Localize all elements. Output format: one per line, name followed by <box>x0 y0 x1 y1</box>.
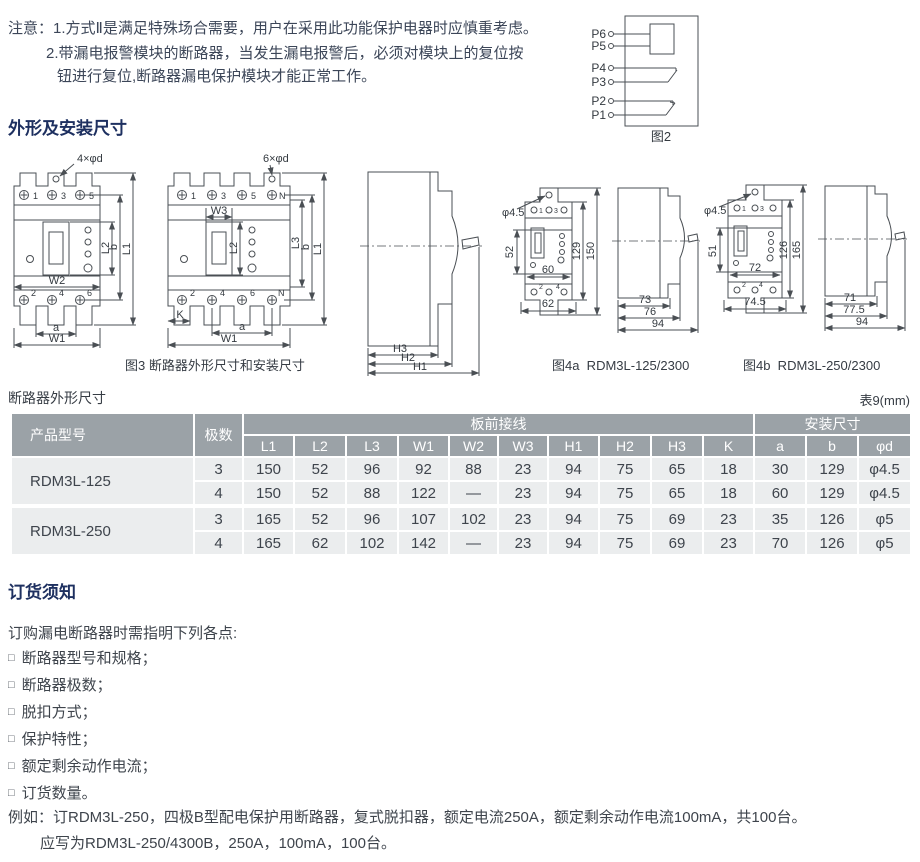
value-cell: 69 <box>651 531 703 555</box>
fig3-3p-dim-b: b <box>108 244 120 250</box>
value-cell: — <box>449 531 498 555</box>
ordering-intro: 订购漏电断路器时需指明下列各点: <box>8 622 237 643</box>
header-col-h2: H2 <box>599 435 651 457</box>
value-cell: 52 <box>294 481 346 506</box>
list-item-label: 脱扣方式； <box>22 701 97 722</box>
poles-cell: 4 <box>194 481 243 506</box>
fig4b-side-view: 71 77.5 94 <box>818 186 907 331</box>
fig4a-dim-60: 60 <box>542 264 554 276</box>
value-cell: 88 <box>346 481 398 506</box>
fig4b-dim-775: 77.5 <box>843 304 864 316</box>
value-cell: 102 <box>449 506 498 531</box>
value-cell: φ4.5 <box>858 457 911 481</box>
header-group-front-wiring: 板前接线 <box>243 413 754 435</box>
section-title-ordering: 订货须知 <box>8 578 76 603</box>
value-cell: 23 <box>703 506 754 531</box>
fig3-3p-dim-w2: W2 <box>49 275 66 287</box>
value-cell: 52 <box>294 506 346 531</box>
square-bullet-icon: □ <box>8 733 15 745</box>
fig3-4p-terminal-2: 2 <box>190 288 195 298</box>
header-poles: 极数 <box>194 413 243 457</box>
header-col-l2: L2 <box>294 435 346 457</box>
value-cell: 129 <box>806 457 858 481</box>
outline-drawings: 4×φd 1 3 5 2 4 6 W2 a W1 L2 b L1 <box>0 146 920 378</box>
fig3-4p-terminal-4: 4 <box>220 288 225 298</box>
value-cell: 18 <box>703 457 754 481</box>
fig3-4p-terminal-1: 1 <box>191 191 196 201</box>
list-item: □ 额定剩余动作电流； <box>8 752 157 779</box>
fig4b-dim-94: 94 <box>856 316 868 328</box>
fig4a-front-view: 1 3 2 4 φ4.5 52 60 62 129 150 <box>502 188 601 315</box>
fig3-4p-terminal-5: 5 <box>251 191 256 201</box>
square-bullet-icon: □ <box>8 760 15 772</box>
header-col-h3: H3 <box>651 435 703 457</box>
fig4a-dim-129: 129 <box>571 242 583 260</box>
list-item-label: 保护特性； <box>22 728 97 749</box>
terminal-p2-label: P2 <box>591 94 606 108</box>
square-bullet-icon: □ <box>8 787 15 799</box>
value-cell: 23 <box>498 457 548 481</box>
fig4a-side-view: 73 76 94 <box>612 188 700 333</box>
fig3-4p-terminal-3: 3 <box>221 191 226 201</box>
list-item-label: 额定剩余动作电流； <box>22 755 157 776</box>
fig3-3p-terminal-4: 4 <box>59 288 64 298</box>
poles-cell: 3 <box>194 457 243 481</box>
list-item-label: 订货数量。 <box>22 782 97 803</box>
fig4a-dim-62: 62 <box>542 298 554 310</box>
value-cell: 94 <box>548 457 599 481</box>
fig4b-terminal-2: 2 <box>742 282 746 289</box>
value-cell: 150 <box>243 457 294 481</box>
value-cell: 65 <box>651 481 703 506</box>
terminal-p4-label: P4 <box>591 61 606 75</box>
header-col-b: b <box>806 435 858 457</box>
list-item-label: 断路器型号和规格； <box>22 647 157 668</box>
header-col-h1: H1 <box>548 435 599 457</box>
value-cell: 18 <box>703 481 754 506</box>
fig3-3p-dim-w1: W1 <box>49 333 66 345</box>
value-cell: 60 <box>754 481 806 506</box>
list-item: □ 保护特性； <box>8 725 157 752</box>
section-title-dimensions: 外形及安装尺寸 <box>8 114 127 139</box>
fig2-wiring <box>609 32 678 118</box>
model-cell-rdm3l-250: RDM3L-250 <box>11 506 194 555</box>
fig4a-dim-73: 73 <box>639 294 651 306</box>
value-cell: 35 <box>754 506 806 531</box>
fig3-4p-dim-a: a <box>239 321 246 333</box>
value-cell: 94 <box>548 531 599 555</box>
fig4b-terminal-3: 3 <box>760 206 764 213</box>
fig4a-terminal-2: 2 <box>539 284 543 291</box>
value-cell: 69 <box>651 506 703 531</box>
fig4a-terminal-4: 4 <box>556 284 560 291</box>
value-cell: 70 <box>754 531 806 555</box>
fig2-caption: 图2 <box>651 129 671 144</box>
value-cell: 92 <box>398 457 449 481</box>
fig4b-terminal-4: 4 <box>759 282 763 289</box>
value-cell: φ4.5 <box>858 481 911 506</box>
value-cell: φ5 <box>858 531 911 555</box>
square-bullet-icon: □ <box>8 679 15 691</box>
terminal-p5-label: P5 <box>591 39 606 53</box>
fig3-4p-dim-l2: L2 <box>228 242 240 254</box>
header-col-l3: L3 <box>346 435 398 457</box>
fig3-side-view: H3 H2 H1 <box>360 172 482 376</box>
fig3-4p-dim-w1: W1 <box>221 333 238 345</box>
fig3-caption: 图3 断路器外形尺寸和安装尺寸 <box>125 355 305 374</box>
header-col-phid: φd <box>858 435 911 457</box>
table-unit-note: 表9(mm) <box>859 390 910 409</box>
value-cell: 75 <box>599 506 651 531</box>
poles-cell: 3 <box>194 506 243 531</box>
value-cell: 96 <box>346 506 398 531</box>
value-cell: 165 <box>243 506 294 531</box>
header-col-w1: W1 <box>398 435 449 457</box>
value-cell: 75 <box>599 531 651 555</box>
header-col-l1: L1 <box>243 435 294 457</box>
table-row: RDM3L-125 3 150 52 96 92 88 23 94 75 65 … <box>11 457 911 481</box>
value-cell: 142 <box>398 531 449 555</box>
square-bullet-icon: □ <box>8 706 15 718</box>
fig3-front-4pole: 6×φd 1 3 5 N 2 4 6 N W3 K a W1 L2 L3 <box>168 153 327 348</box>
value-cell: 122 <box>398 481 449 506</box>
value-cell: 75 <box>599 481 651 506</box>
value-cell: 126 <box>806 506 858 531</box>
fig2-terminal-schematic: P6 P5 P4 P3 P2 P1 图2 <box>578 10 788 150</box>
fig3-4p-terminal-6: 6 <box>250 288 255 298</box>
header-group-mounting: 安装尺寸 <box>754 413 911 435</box>
header-col-k: K <box>703 435 754 457</box>
fig4a-dim-52: 52 <box>504 246 516 258</box>
fig3-3p-terminal-2: 2 <box>31 288 36 298</box>
value-cell: 23 <box>498 481 548 506</box>
fig4b-dim-71: 71 <box>844 292 856 304</box>
list-item-label: 断路器极数； <box>22 674 112 695</box>
value-cell: 96 <box>346 457 398 481</box>
fig2-terminal-labels: P6 P5 P4 P3 P2 P1 <box>591 27 606 122</box>
fig3-4p-dim-b: b <box>300 244 312 250</box>
fig3-3p-drill-note: 4×φd <box>77 153 103 165</box>
fig4b-dim-72: 72 <box>749 262 761 274</box>
fig3-3p-terminal-6: 6 <box>87 288 92 298</box>
dimensions-table-wrap: 产品型号 极数 板前接线 安装尺寸 L1 L2 L3 W1 W2 W3 H1 H… <box>10 412 910 556</box>
value-cell: 23 <box>703 531 754 555</box>
poles-cell: 4 <box>194 531 243 555</box>
fig3-3p-terminal-1: 1 <box>33 191 38 201</box>
fig3-3p-dim-l1: L1 <box>121 243 133 255</box>
datasheet-page: 注意：1.方式Ⅱ是满足特殊场合需要，用户在采用此功能保护电器时应慎重考虑。 2.… <box>0 0 920 862</box>
notice-line-3: 钮进行复位,断路器漏电保护模块才能正常工作。 <box>57 67 376 86</box>
fig2-enclosure <box>625 16 698 126</box>
terminal-p1-label: P1 <box>591 108 606 122</box>
fig3-front-3pole: 4×φd 1 3 5 2 4 6 W2 a W1 L2 b L1 <box>14 153 136 348</box>
fig4b-caption: 图4b RDM3L-250/2300 <box>743 355 880 374</box>
ordering-list: □ 断路器型号和规格； □ 断路器极数； □ 脱扣方式； □ 保护特性； □ 额… <box>8 644 157 806</box>
value-cell: 129 <box>806 481 858 506</box>
value-cell: 88 <box>449 457 498 481</box>
value-cell: 23 <box>498 506 548 531</box>
table-row: RDM3L-250 3 165 52 96 107 102 23 94 75 6… <box>11 506 911 531</box>
value-cell: 75 <box>599 457 651 481</box>
value-cell: 94 <box>548 481 599 506</box>
list-item: □ 断路器型号和规格； <box>8 644 157 671</box>
value-cell: 107 <box>398 506 449 531</box>
fig3-4p-terminal-n-bottom: N <box>278 288 285 298</box>
fig4b-front-view: 1 3 2 4 φ4.5 51 72 74.5 126 165 <box>704 185 807 313</box>
fig4b-dim-165: 165 <box>791 241 803 259</box>
list-item: □ 脱扣方式； <box>8 698 157 725</box>
value-cell: 62 <box>294 531 346 555</box>
value-cell: 65 <box>651 457 703 481</box>
notice-line-2: 2.带漏电报警模块的断路器，当发生漏电报警后，必须对模块上的复位按 <box>46 44 524 63</box>
fig4a-caption: 图4a RDM3L-125/2300 <box>552 355 689 374</box>
fig3-3p-terminal-3: 3 <box>61 191 66 201</box>
value-cell: 23 <box>498 531 548 555</box>
table-title: 断路器外形尺寸 <box>8 388 106 408</box>
fig4a-drill-note: φ4.5 <box>502 207 524 219</box>
fig4b-dim-126: 126 <box>778 241 790 259</box>
fig4a-terminal-3: 3 <box>554 208 558 215</box>
fig4b-terminal-1: 1 <box>742 206 746 213</box>
fig4b-drill-note: φ4.5 <box>704 205 726 217</box>
model-cell-rdm3l-125: RDM3L-125 <box>11 457 194 506</box>
value-cell: 165 <box>243 531 294 555</box>
value-cell: 102 <box>346 531 398 555</box>
fig4a-dim-94: 94 <box>652 318 664 330</box>
value-cell: 30 <box>754 457 806 481</box>
fig3-4p-terminal-n-top: N <box>279 191 286 201</box>
fig4a-dim-150: 150 <box>585 242 597 260</box>
list-item: □ 断路器极数； <box>8 671 157 698</box>
fig3-3p-terminal-5: 5 <box>89 191 94 201</box>
ordering-example-line-1: 例如：订RDM3L-250，四极B型配电保护用断路器，复式脱扣器，额定电流250… <box>8 806 806 827</box>
square-bullet-icon: □ <box>8 652 15 664</box>
value-cell: φ5 <box>858 506 911 531</box>
fig3-4p-dim-l1: L1 <box>312 243 324 255</box>
fig4a-dim-76: 76 <box>644 306 656 318</box>
header-col-w2: W2 <box>449 435 498 457</box>
fig4b-dim-51: 51 <box>707 245 719 257</box>
value-cell: 126 <box>806 531 858 555</box>
dimensions-table: 产品型号 极数 板前接线 安装尺寸 L1 L2 L3 W1 W2 W3 H1 H… <box>10 412 912 556</box>
fig3-4p-drill-note: 6×φd <box>263 153 289 165</box>
fig3-4p-dim-k: K <box>176 309 184 321</box>
fig4a-terminal-1: 1 <box>539 208 543 215</box>
terminal-p3-label: P3 <box>591 75 606 89</box>
value-cell: 94 <box>548 506 599 531</box>
fig3-side-dim-h1: H1 <box>413 361 427 373</box>
header-product: 产品型号 <box>11 413 194 457</box>
value-cell: 150 <box>243 481 294 506</box>
header-col-a: a <box>754 435 806 457</box>
value-cell: 52 <box>294 457 346 481</box>
notice-line-1: 注意：1.方式Ⅱ是满足特殊场合需要，用户在采用此功能保护电器时应慎重考虑。 <box>8 19 538 38</box>
ordering-example-line-2: 应写为RDM3L-250/4300B，250A，100mA，100台。 <box>40 832 396 853</box>
fig3-4p-dim-w3: W3 <box>211 205 228 217</box>
fig4b-dim-745: 74.5 <box>744 296 765 308</box>
header-col-w3: W3 <box>498 435 548 457</box>
value-cell: — <box>449 481 498 506</box>
list-item: □ 订货数量。 <box>8 779 157 806</box>
